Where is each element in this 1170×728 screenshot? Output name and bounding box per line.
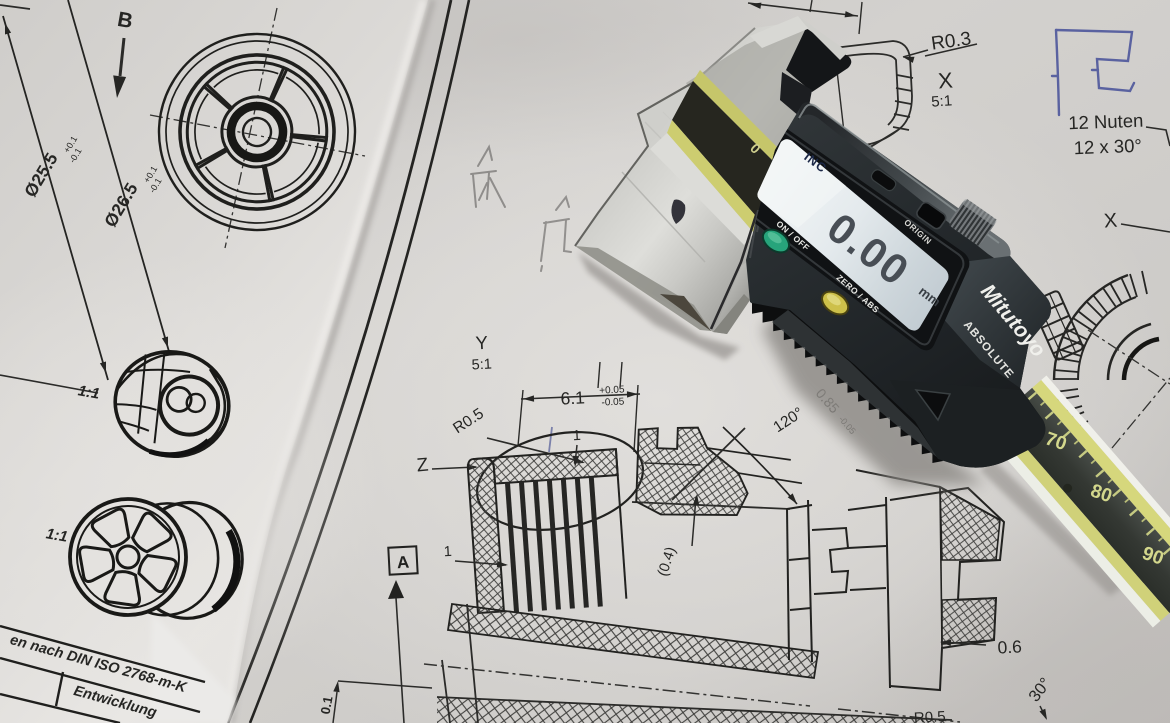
svg-text:Z: Z (416, 455, 430, 477)
svg-text:X: X (937, 68, 954, 94)
svg-text:-0.05: -0.05 (601, 396, 625, 408)
svg-text:0.6: 0.6 (997, 636, 1022, 657)
svg-text:Y: Y (475, 332, 488, 354)
svg-text:12 Nuten: 12 Nuten (1068, 110, 1144, 134)
svg-text:+0.05: +0.05 (599, 384, 625, 396)
svg-text:0.1: 0.1 (318, 695, 336, 715)
svg-text:X: X (1103, 210, 1118, 233)
svg-text:5:1: 5:1 (931, 92, 953, 110)
svg-text:6.1: 6.1 (560, 387, 585, 408)
svg-text:5:1: 5:1 (471, 356, 492, 373)
svg-text:1: 1 (443, 544, 452, 560)
svg-text:1: 1 (572, 428, 581, 444)
svg-text:A: A (396, 553, 409, 573)
svg-text:12 x 30°: 12 x 30° (1073, 135, 1142, 158)
svg-text:R0.5: R0.5 (913, 708, 946, 723)
